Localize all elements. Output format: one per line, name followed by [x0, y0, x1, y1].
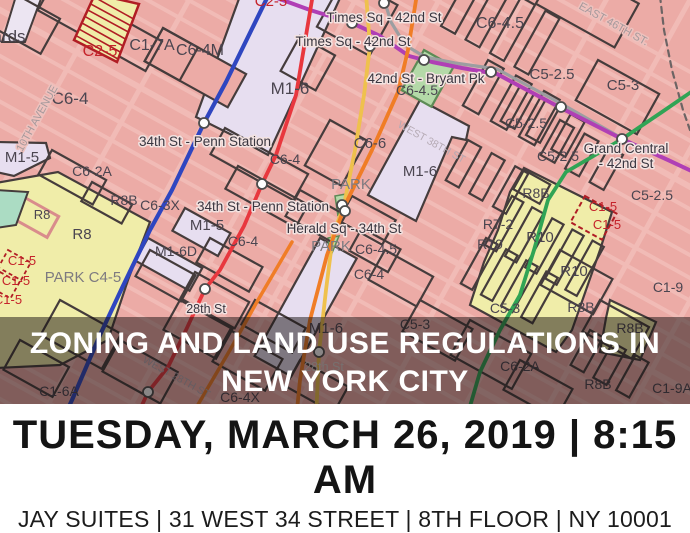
- svg-text:C6-4.5: C6-4.5: [476, 15, 524, 32]
- svg-text:C5-2.5: C5-2.5: [529, 66, 574, 83]
- svg-text:M1-6D: M1-6D: [155, 243, 197, 259]
- svg-text:R8B: R8B: [110, 192, 137, 208]
- svg-text:C6-4.5: C6-4.5: [396, 82, 438, 98]
- svg-text:C1-5: C1-5: [2, 273, 30, 288]
- svg-text:M1-6: M1-6: [403, 163, 437, 180]
- svg-text:C2-5: C2-5: [255, 0, 288, 10]
- svg-text:Times Sq - 42nd St: Times Sq - 42nd St: [326, 10, 441, 25]
- svg-text:C5-2.5: C5-2.5: [505, 115, 547, 131]
- svg-text:R10: R10: [477, 236, 503, 252]
- svg-text:M1-5: M1-5: [190, 217, 224, 234]
- svg-text:C6-4M: C6-4M: [176, 42, 224, 59]
- svg-text:C1-5: C1-5: [593, 217, 621, 232]
- svg-text:R7-2: R7-2: [483, 216, 514, 232]
- svg-text:C6-6: C6-6: [354, 135, 387, 152]
- svg-text:R10: R10: [526, 229, 554, 246]
- svg-text:C1-5: C1-5: [8, 253, 36, 268]
- svg-text:PARK: PARK: [331, 176, 371, 193]
- svg-text:R8B: R8B: [567, 299, 594, 315]
- svg-text:ards: ards: [0, 27, 26, 46]
- svg-text:C5-3: C5-3: [607, 77, 640, 94]
- svg-text:34th St - Penn Station: 34th St - Penn Station: [139, 134, 271, 149]
- svg-text:C5-2.5: C5-2.5: [537, 148, 579, 164]
- svg-text:C6-4: C6-4: [270, 151, 301, 167]
- svg-text:Grand Central: Grand Central: [584, 141, 669, 156]
- svg-text:R10: R10: [560, 263, 588, 280]
- svg-text:- 42nd St: - 42nd St: [599, 156, 654, 171]
- svg-text:C5-3: C5-3: [490, 300, 521, 316]
- svg-text:C6-4.5: C6-4.5: [355, 241, 397, 257]
- svg-text:R8: R8: [72, 226, 91, 243]
- svg-text:C6-2A: C6-2A: [72, 163, 112, 179]
- svg-text:C1-9: C1-9: [653, 279, 684, 295]
- svg-text:M1-6: M1-6: [271, 79, 310, 98]
- svg-text:R8B: R8B: [522, 185, 549, 201]
- svg-text:28th St: 28th St: [186, 302, 226, 316]
- svg-text:C1-5: C1-5: [589, 199, 617, 214]
- svg-text:PARK C4-5: PARK C4-5: [45, 269, 121, 286]
- svg-text:C1-7A: C1-7A: [129, 37, 175, 54]
- svg-text:C1-5: C1-5: [0, 292, 22, 307]
- svg-text:34th St - Penn Station: 34th St - Penn Station: [197, 199, 329, 214]
- svg-text:C5-2.5: C5-2.5: [631, 187, 673, 203]
- svg-text:C6-4: C6-4: [354, 266, 385, 282]
- svg-text:R8: R8: [34, 207, 51, 222]
- svg-text:PARK: PARK: [311, 238, 351, 255]
- svg-text:M1-5: M1-5: [5, 149, 39, 166]
- svg-text:Herald Sq - 34th St: Herald Sq - 34th St: [287, 221, 402, 236]
- svg-text:C6-3X: C6-3X: [140, 197, 180, 213]
- svg-text:Times Sq - 42nd St: Times Sq - 42nd St: [295, 34, 410, 49]
- svg-text:C2-5: C2-5: [83, 43, 118, 60]
- svg-text:C6-4: C6-4: [228, 233, 259, 249]
